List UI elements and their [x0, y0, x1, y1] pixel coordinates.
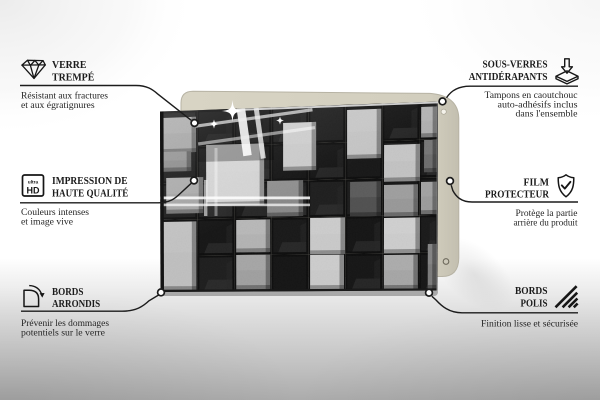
svg-text:BORDS: BORDS	[515, 286, 548, 297]
svg-text:HAUTE QUALITÉ: HAUTE QUALITÉ	[52, 188, 128, 200]
svg-text:ARRONDIS: ARRONDIS	[52, 299, 100, 310]
svg-text:et aux égratignures: et aux égratignures	[21, 101, 95, 111]
svg-text:HD: HD	[27, 186, 40, 196]
svg-text:ANTIDÉRAPANTS: ANTIDÉRAPANTS	[469, 71, 548, 83]
svg-text:Finition lisse et sécurisée: Finition lisse et sécurisée	[481, 320, 578, 330]
svg-text:VERRE: VERRE	[52, 60, 87, 71]
svg-text:PROTECTEUR: PROTECTEUR	[485, 190, 550, 201]
svg-text:arrière du produit: arrière du produit	[514, 218, 578, 228]
svg-text:potentiels sur le verre: potentiels sur le verre	[21, 328, 105, 338]
svg-text:dans l'ensemble: dans l'ensemble	[516, 110, 578, 120]
svg-text:TREMPÉ: TREMPÉ	[52, 71, 94, 83]
svg-text:FILM: FILM	[524, 178, 550, 189]
svg-text:POLIS: POLIS	[521, 299, 548, 310]
svg-text:BORDS: BORDS	[52, 287, 84, 298]
svg-text:et image vive: et image vive	[21, 217, 73, 227]
svg-text:IMPRESSION DE: IMPRESSION DE	[52, 176, 128, 187]
svg-text:ultra: ultra	[28, 179, 39, 185]
svg-text:SOUS-VERRES: SOUS-VERRES	[483, 60, 548, 71]
